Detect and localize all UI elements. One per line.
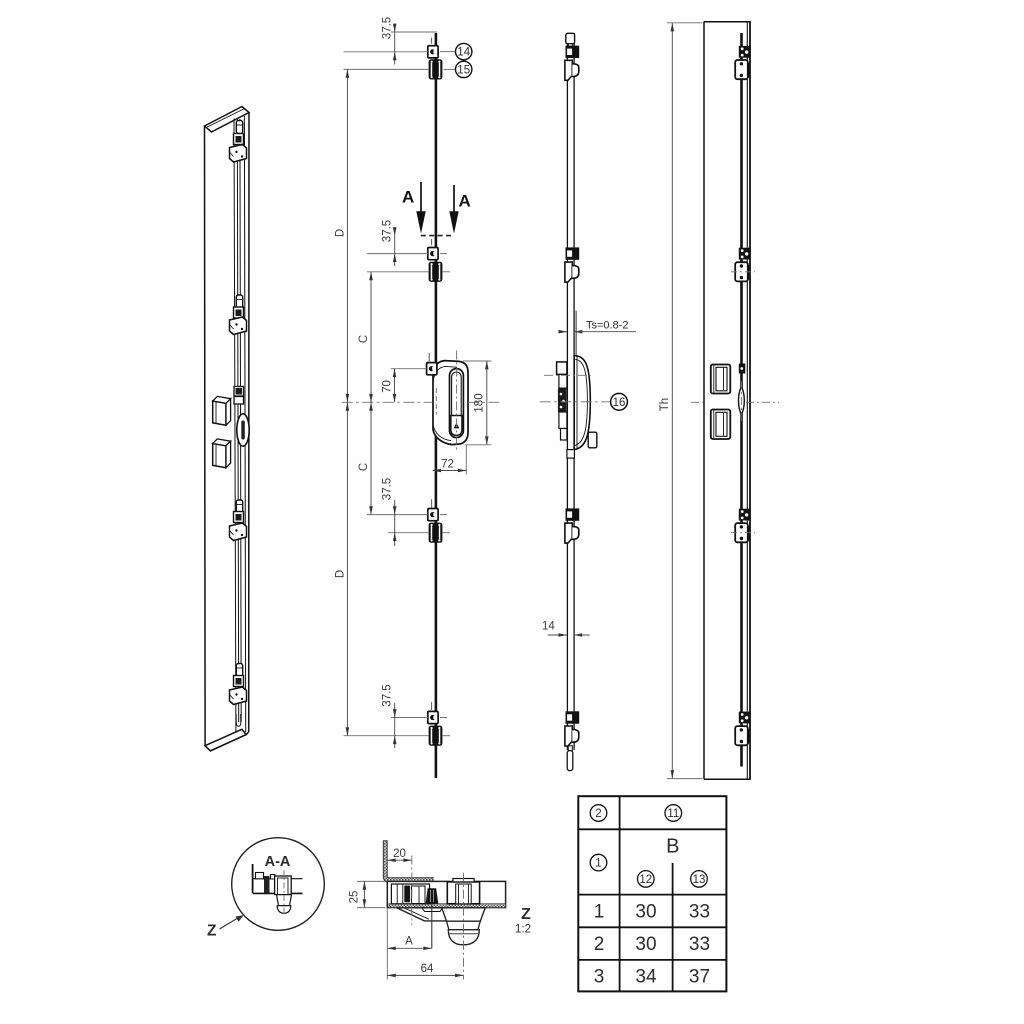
svg-text:1:2: 1:2: [515, 924, 531, 936]
svg-text:14: 14: [542, 621, 555, 633]
svg-text:1: 1: [595, 858, 601, 870]
svg-text:30: 30: [635, 934, 656, 955]
svg-text:25: 25: [349, 891, 361, 904]
svg-text:37.5: 37.5: [382, 17, 394, 39]
svg-text:70: 70: [382, 380, 394, 393]
svg-text:37.5: 37.5: [382, 220, 394, 242]
svg-text:33: 33: [689, 902, 710, 923]
svg-text:A: A: [405, 936, 413, 948]
svg-text:3: 3: [594, 966, 605, 987]
svg-text:13: 13: [693, 874, 706, 886]
svg-text:D: D: [335, 229, 347, 237]
svg-text:37.5: 37.5: [382, 684, 394, 706]
svg-text:1: 1: [594, 902, 605, 923]
svg-text:Th: Th: [659, 398, 671, 411]
svg-text:11: 11: [667, 808, 679, 820]
svg-text:37: 37: [689, 966, 710, 987]
svg-text:2: 2: [595, 808, 601, 820]
svg-text:Z: Z: [207, 923, 217, 940]
svg-text:2: 2: [594, 934, 605, 955]
svg-text:33: 33: [689, 934, 710, 955]
svg-text:A: A: [459, 192, 471, 211]
svg-text:12: 12: [639, 874, 652, 886]
svg-text:30: 30: [635, 902, 656, 923]
svg-text:14: 14: [457, 47, 470, 59]
svg-text:D: D: [335, 570, 347, 578]
svg-text:15: 15: [457, 64, 470, 76]
svg-text:Ts=0.8-2: Ts=0.8-2: [586, 320, 629, 332]
svg-text:64: 64: [421, 963, 434, 975]
svg-text:34: 34: [635, 966, 657, 987]
svg-text:72: 72: [441, 459, 454, 471]
svg-text:B: B: [666, 836, 679, 858]
svg-text:A: A: [402, 188, 414, 207]
svg-text:20: 20: [393, 848, 406, 860]
svg-text:A-A: A-A: [265, 854, 291, 870]
svg-text:Z: Z: [521, 906, 531, 923]
svg-text:16: 16: [613, 397, 626, 409]
svg-text:C: C: [358, 463, 370, 471]
svg-text:37.5: 37.5: [382, 478, 394, 500]
svg-text:C: C: [358, 335, 370, 343]
svg-text:180: 180: [474, 393, 486, 412]
